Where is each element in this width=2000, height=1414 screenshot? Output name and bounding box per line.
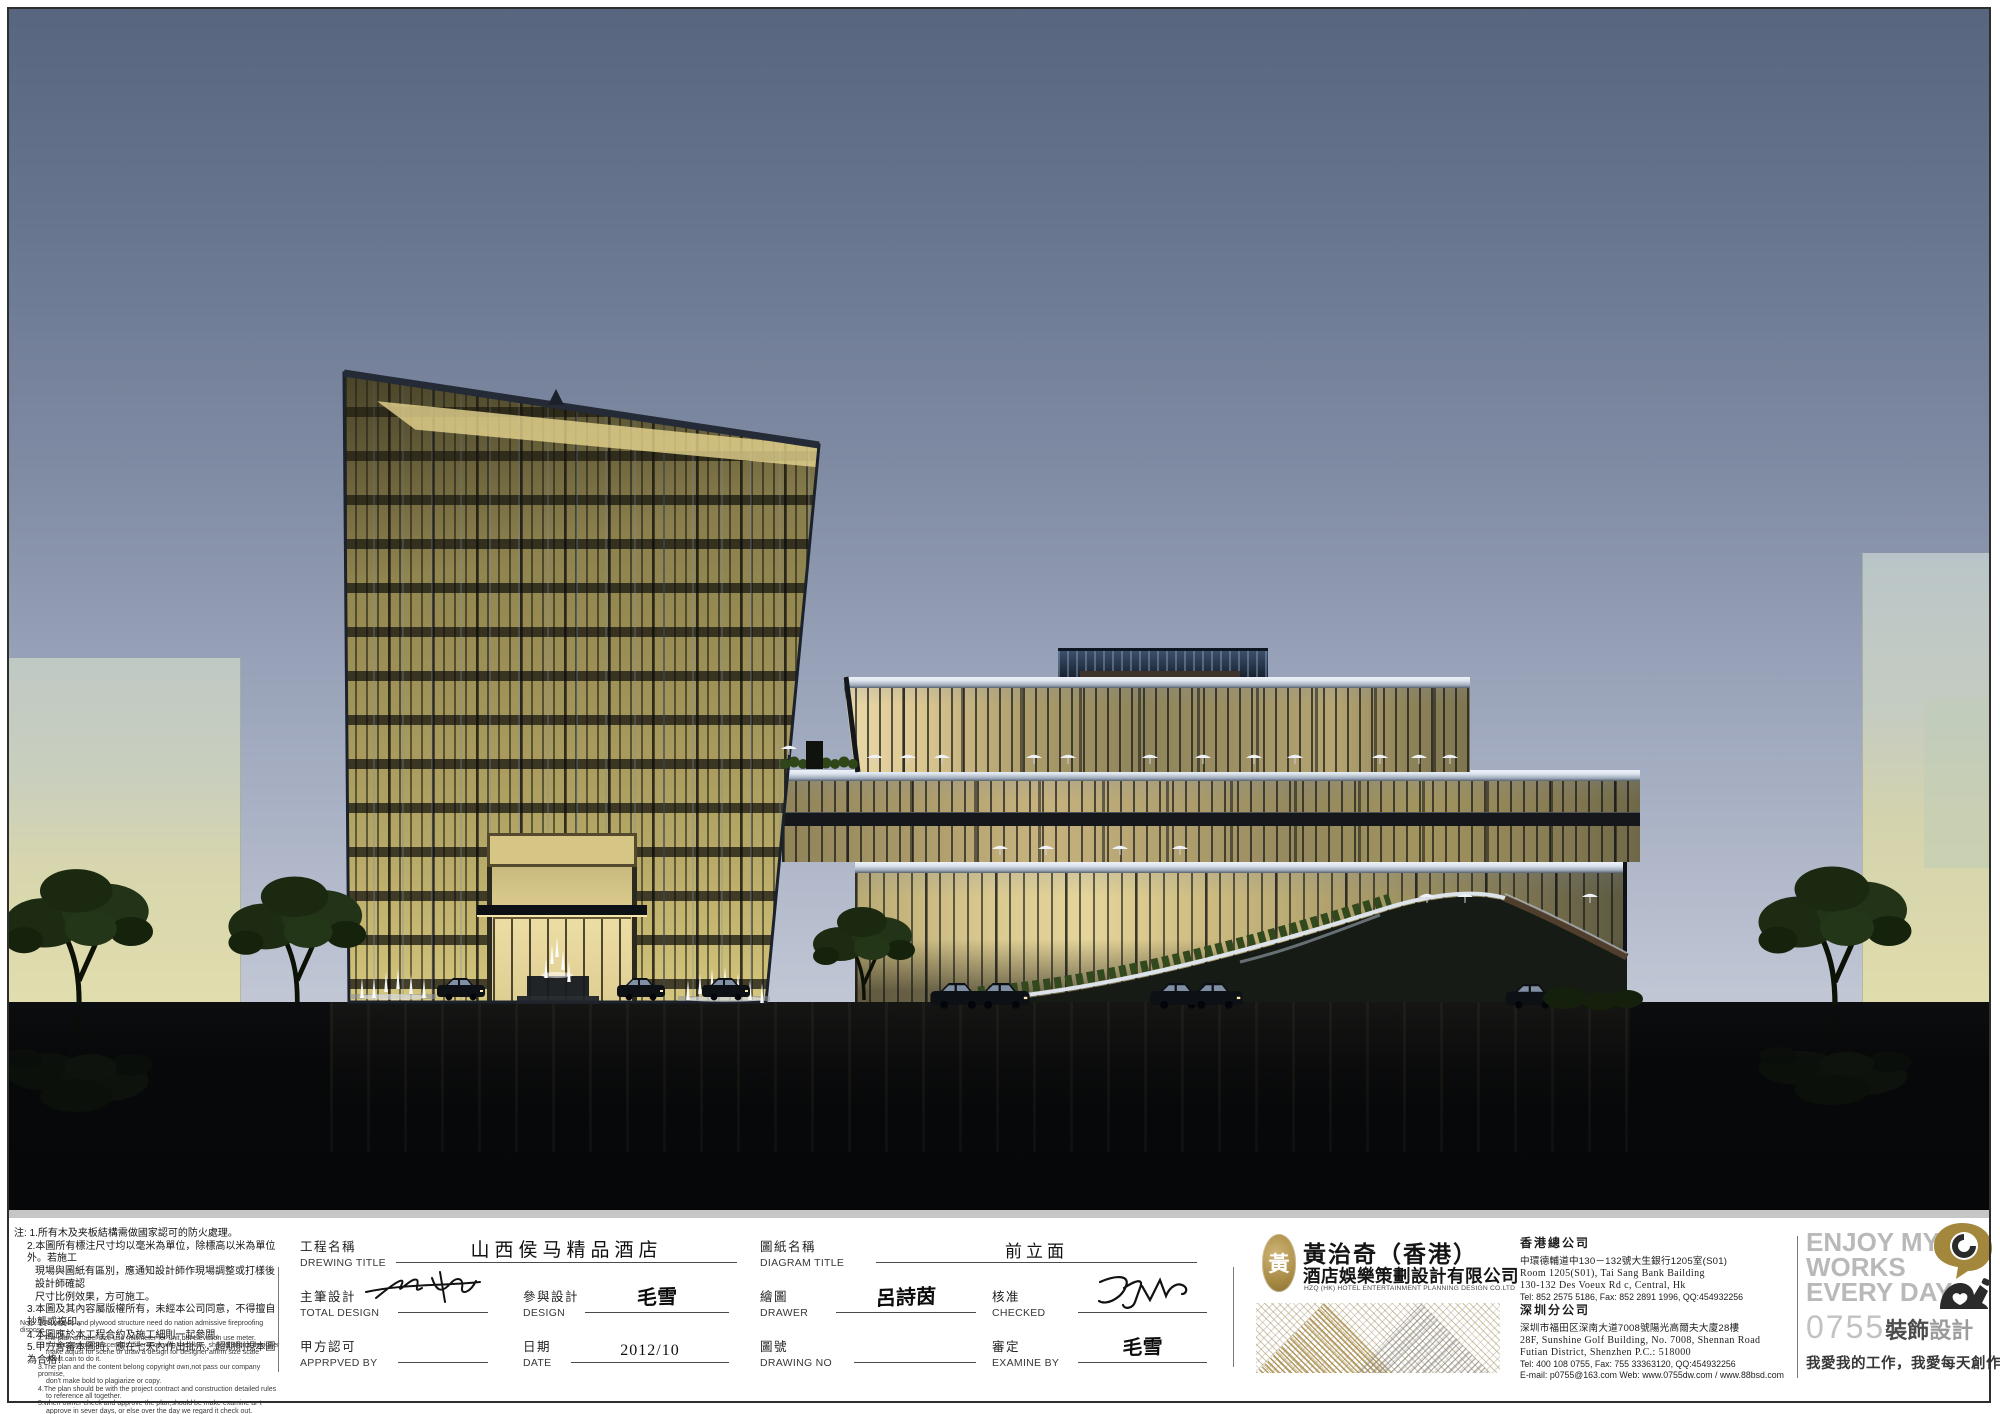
note-line: 現場與圖紙有區別，應通知設計師作現場調整或打樣後設計師確認: [14, 1266, 282, 1291]
date-value: 2012/10: [571, 1342, 729, 1360]
note-line: effect.can to do it.: [20, 1356, 282, 1363]
field-diagram-title: 圖紙名稱 DIAGRAM TITLE 前立面: [760, 1236, 1197, 1263]
office-address-cn: 中環德輔道中130－132號大生銀行1205室(S01): [1520, 1253, 1796, 1267]
column-divider: [1797, 1236, 1798, 1378]
floor-slab-edge: [855, 862, 1623, 873]
field-label-cn: 工程名稱: [300, 1236, 386, 1255]
note-line: 2.The plan all label size use millimeter…: [20, 1335, 282, 1342]
field-label-cn: 繪圖: [760, 1286, 808, 1305]
office-address-en: 130-132 Des Voeux Rd c, Central, Hk: [1520, 1280, 1796, 1291]
field-label-en: DESIGN: [523, 1307, 579, 1319]
field-label-en: APPRPVED BY: [300, 1357, 377, 1369]
examine-value: 毛雪: [1078, 1329, 1208, 1363]
field-label-en: CHECKED: [992, 1307, 1045, 1319]
brand-slogan: 我愛我的工作，我愛每天創作: [1806, 1352, 1994, 1373]
company-name-en: HZQ (HK) HOTEL ENTERTAINMENT PLANNING DE…: [1304, 1285, 1520, 1292]
podium-lower-floor: [855, 862, 1627, 1002]
notes-english: Note: 1.All woods and plywood structure …: [20, 1320, 282, 1414]
background-building-left: [8, 658, 241, 1002]
office-title: 香港總公司: [1520, 1234, 1796, 1251]
seal-character: 黃: [1262, 1234, 1296, 1292]
field-total-design: 主筆設計 TOTAL DESIGN: [300, 1286, 488, 1313]
note-line: don't make bold to plagiarize or copy.: [20, 1378, 282, 1385]
render-title-divider: [9, 1210, 1991, 1218]
note-line: approve in sever days, or else over the …: [20, 1408, 282, 1414]
office-email-web: E-mail: p0755@163.com Web: www.0755dw.co…: [1520, 1370, 1796, 1380]
office-address-en: Futian District, Shenzhen P.C.: 518000: [1520, 1347, 1796, 1358]
hotel-tower: [344, 373, 819, 1002]
field-label-cn: 圖紙名稱: [760, 1236, 844, 1255]
design-value: 毛雪: [585, 1278, 730, 1312]
drawing-sheet: 注: 1.所有木及夹板結構需做國家認可的防火處理。 2.本圖所有標注尺寸均以毫米…: [0, 0, 2000, 1414]
project-name-value: 山西侯马精品酒店: [396, 1235, 737, 1262]
brand-deco: 裝飾: [1885, 1318, 1929, 1343]
diagram-title-value: 前立面: [876, 1237, 1197, 1262]
field-drawer: 繪圖 DRAWER 呂詩茵: [760, 1286, 976, 1313]
column-divider: [1233, 1267, 1234, 1367]
office-hongkong: 香港總公司 中環德輔道中130－132號大生銀行1205室(S01) Room …: [1520, 1234, 1796, 1303]
drawer-value: 呂詩茵: [836, 1279, 977, 1313]
entrance-upper-window: [487, 833, 637, 867]
field-label-en: DATE: [523, 1357, 551, 1369]
company-seal-logo: 黃: [1262, 1234, 1296, 1292]
field-label-en: DRAWING NO: [760, 1357, 832, 1369]
note-line: If the construction scene is difference …: [20, 1342, 282, 1349]
brand-design: 設計: [1929, 1318, 1973, 1343]
field-checked: 核准 CHECKED: [992, 1286, 1207, 1313]
brand-code: 0755: [1806, 1309, 1885, 1345]
note-line: 2.本圖所有標注尺寸均以毫米為單位，除標高以米為單位外。若施工: [14, 1241, 282, 1266]
note-line: 尺寸比例效果，方可施工。: [14, 1292, 282, 1305]
note-line: 3.The plan and the content belong copyri…: [20, 1364, 282, 1379]
crosshatch-pattern: [1256, 1303, 1500, 1373]
elevation-rendering: [0, 0, 2000, 1414]
field-label-cn: 圖號: [760, 1336, 832, 1355]
note-line: Note: 1.All woods and plywood structure …: [20, 1320, 282, 1335]
signature-total-design: [362, 1268, 492, 1312]
note-line: 注: 1.所有木及夹板結構需做國家認可的防火處理。: [14, 1228, 282, 1241]
entrance-canopy: [477, 905, 647, 915]
field-label-cn: 審定: [992, 1336, 1059, 1355]
field-date: 日期 DATE 2012/10: [523, 1336, 729, 1363]
background-building-right-step: [1924, 698, 1991, 868]
column-divider: [278, 1267, 279, 1372]
office-title: 深圳分公司: [1520, 1301, 1796, 1318]
note-line: to reference all together.: [20, 1393, 282, 1400]
office-tel: Tel: 400 108 0755, Fax: 755 33363120, QQ…: [1520, 1359, 1796, 1369]
floor-spandrel-band: [782, 812, 1640, 826]
field-label-en: DIAGRAM TITLE: [760, 1257, 844, 1269]
signature-checked: [1084, 1270, 1204, 1316]
field-examine-by: 審定 EXAMINE BY 毛雪: [992, 1336, 1207, 1363]
note-line: 4.The plan should be with the project co…: [20, 1386, 282, 1393]
field-label-en: DRAWER: [760, 1307, 808, 1319]
note-line: 5.when owner check and approve the plan,…: [20, 1400, 282, 1407]
field-label-cn: 核准: [992, 1286, 1045, 1305]
office-address-en: Room 1205(S01), Tai Sang Bank Bailding: [1520, 1268, 1796, 1279]
floor-slab-edge: [843, 677, 1470, 688]
field-project-name: 工程名稱 DREWING TITLE 山西侯马精品酒店: [300, 1236, 737, 1263]
office-address-en: 28F, Sunshine Golf Building, No. 7008, S…: [1520, 1335, 1796, 1346]
field-label-cn: 甲方認可: [300, 1336, 377, 1355]
field-drawing-no: 圖號 DRAWING NO: [760, 1336, 976, 1363]
field-label-en: EXAMINE BY: [992, 1357, 1059, 1369]
note-line: make adjust for scene or draw a design f…: [20, 1349, 282, 1356]
entrance-lobby-glass: [493, 917, 631, 1004]
field-label-cn: 日期: [523, 1336, 551, 1355]
title-block: 注: 1.所有木及夹板結構需做國家認可的防火處理。 2.本圖所有標注尺寸均以毫米…: [9, 1218, 1991, 1403]
podium-upper-floor: [843, 677, 1470, 772]
office-shenzhen: 深圳分公司 深圳市福田区深南大道7008號陽光高爾夫大廈28樓 28F, Sun…: [1520, 1301, 1796, 1381]
field-label-cn: 參與設計: [523, 1286, 579, 1305]
podium-middle-floor: [782, 770, 1640, 862]
field-approved-by: 甲方認可 APPRPVED BY: [300, 1336, 488, 1363]
office-address-cn: 深圳市福田区深南大道7008號陽光高爾夫大廈28樓: [1520, 1320, 1796, 1334]
field-design: 參與設計 DESIGN 毛雪: [523, 1286, 729, 1313]
mascot-logo-icon: [1926, 1221, 1998, 1313]
ground-reflection: [330, 1002, 1630, 1152]
